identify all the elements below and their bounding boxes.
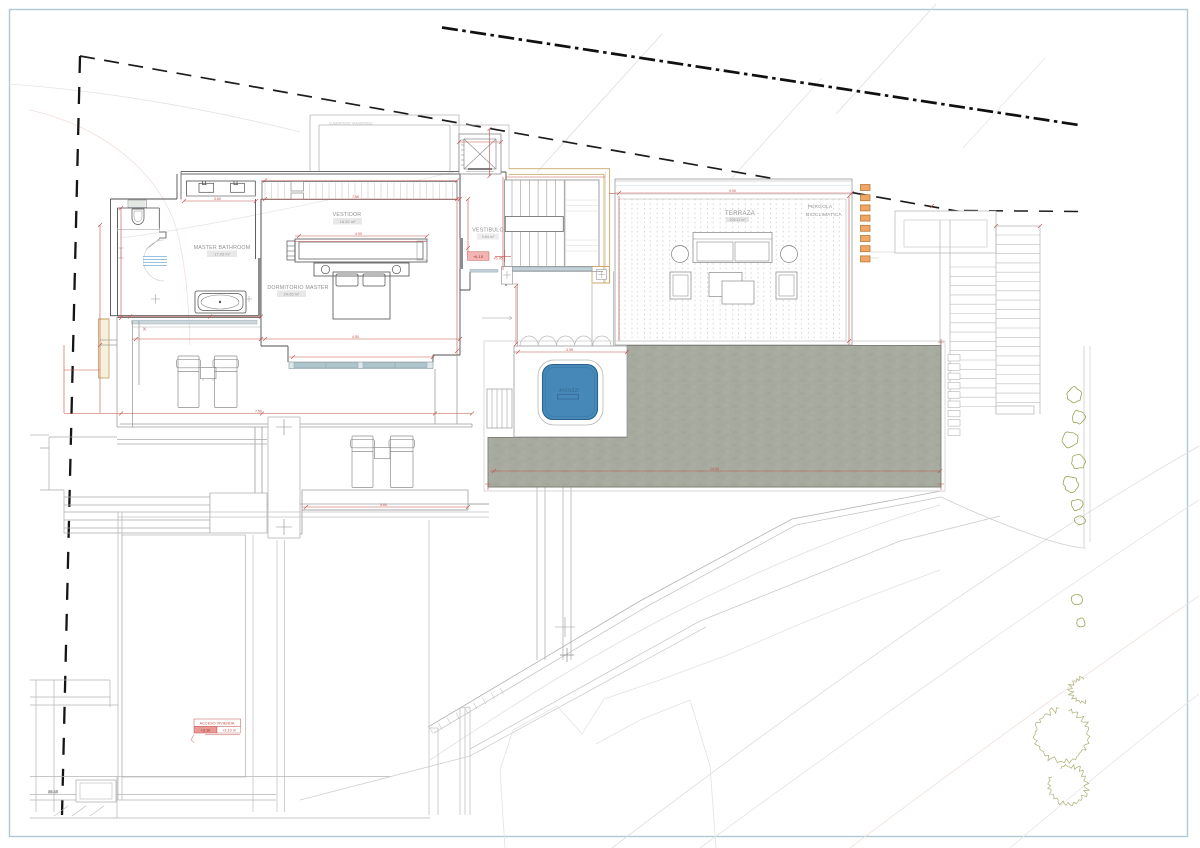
svg-text:ACCESO VIVIENDA: ACCESO VIVIENDA [200,722,235,726]
svg-text:MASTER BATHROOM: MASTER BATHROOM [194,245,251,251]
svg-text:106.11 m²: 106.11 m² [730,218,747,222]
svg-text:+5.95: +5.95 [493,257,503,261]
svg-text:24.05 m²: 24.05 m² [284,292,300,297]
svg-text:9.84 m²: 9.84 m² [482,235,496,239]
svg-text:DORMITORIO MASTER: DORMITORIO MASTER [267,285,328,291]
svg-text:9.90: 9.90 [729,189,736,193]
svg-text:+3.10 m: +3.10 m [222,729,236,733]
svg-text:4.50: 4.50 [352,335,359,339]
svg-text:TERRAZA: TERRAZA [725,211,755,217]
svg-text:7.56: 7.56 [352,195,359,199]
svg-text:+3.10: +3.10 [201,729,211,733]
svg-text:BIOCLIMATICA: BIOCLIMATICA [806,212,842,218]
svg-text:CUBIERTA NO TRANSITABLE: CUBIERTA NO TRANSITABLE [329,122,373,126]
svg-text:3.95: 3.95 [566,348,573,352]
svg-text:17.05 m²: 17.05 m² [214,252,230,257]
svg-text:JACUZZI: JACUZZI [559,388,579,393]
svg-text:5.60: 5.60 [380,503,387,507]
svg-text:PERGOLA: PERGOLA [808,204,833,210]
svg-text:+6.15: +6.15 [473,254,484,259]
svg-text:VESTIBULO: VESTIBULO [472,228,504,234]
svg-text:VESTIDOR: VESTIDOR [333,212,362,218]
svg-text:14.00: 14.00 [710,467,719,471]
svg-text:3.60: 3.60 [214,197,221,201]
svg-text:18.32 m²: 18.32 m² [340,219,356,224]
svg-text:7.56: 7.56 [255,410,262,414]
svg-text:4.00: 4.00 [355,232,362,236]
svg-text:29.15: 29.15 [48,789,59,794]
